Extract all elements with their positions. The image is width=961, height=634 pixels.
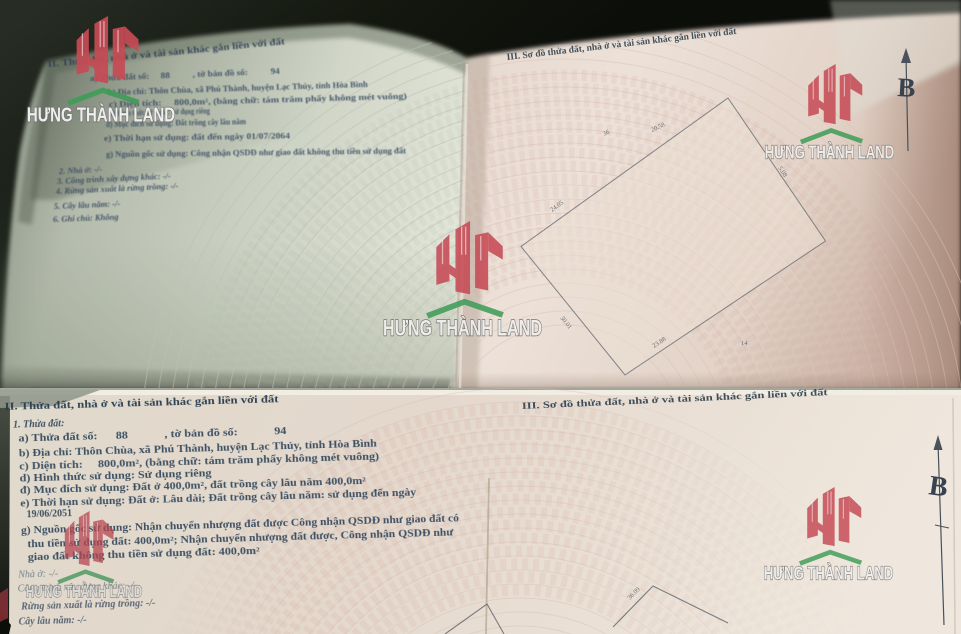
svg-text:1. Thửa đất:: 1. Thửa đất: bbox=[13, 418, 65, 430]
svg-text:Cây lâu năm: -/-: Cây lâu năm: -/- bbox=[18, 615, 86, 628]
svg-text:B: B bbox=[897, 72, 917, 103]
svg-text:14: 14 bbox=[741, 340, 748, 347]
